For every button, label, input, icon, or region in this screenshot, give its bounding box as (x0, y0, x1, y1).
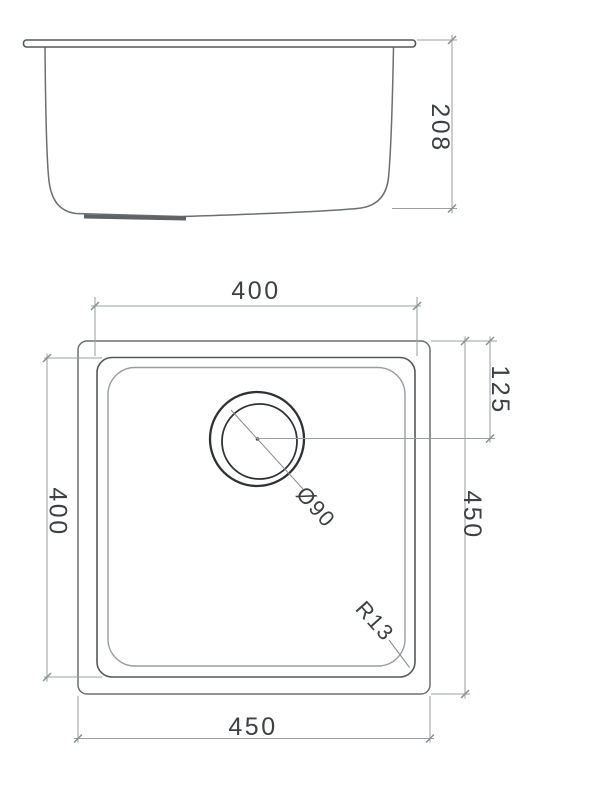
drain-offset-dimension: 125 (258, 337, 515, 443)
corner-radius-label: R13 (351, 596, 400, 646)
corner-radius-annotation: R13 (351, 596, 410, 668)
drain-base-edge (84, 217, 186, 219)
outer-width-label: 450 (228, 713, 277, 741)
inner-width-label: 400 (231, 277, 280, 305)
outer-width-dimension: 450 (74, 696, 434, 743)
drain-diameter-label: Ø90 (291, 482, 340, 533)
inner-width-dimension: 400 (91, 277, 421, 356)
sink-rim-flange-outline (24, 40, 416, 47)
corner-radius-leader-line (389, 640, 410, 668)
inner-height-dimension: 400 (43, 354, 102, 682)
plan-view: Ø90 R13 400 400 (43, 277, 514, 743)
depth-dimension-label: 208 (426, 103, 454, 152)
drain-offset-label: 125 (486, 365, 514, 414)
drain: Ø90 (210, 392, 341, 532)
outer-height-label: 450 (458, 490, 486, 539)
inner-height-label: 400 (44, 487, 72, 536)
depth-dimension: 208 (392, 35, 457, 214)
sink-basin-outline (45, 48, 394, 217)
side-elevation-view: 208 (24, 35, 458, 219)
technical-drawing: 208 Ø90 R13 (0, 0, 605, 800)
drawing-canvas: 208 Ø90 R13 (0, 0, 605, 800)
